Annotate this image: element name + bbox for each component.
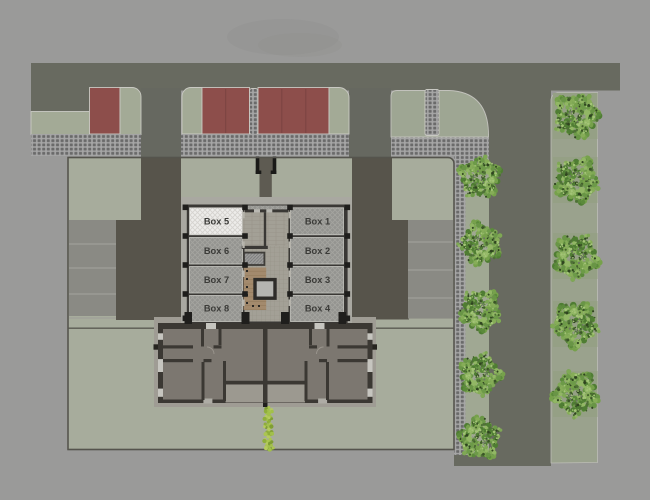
svg-text:Box 4: Box 4 — [305, 304, 331, 314]
svg-text:Box 7: Box 7 — [204, 275, 229, 285]
svg-text:Box 5: Box 5 — [204, 217, 229, 227]
svg-text:Box 8: Box 8 — [204, 304, 229, 314]
svg-text:Box 6: Box 6 — [204, 246, 229, 256]
svg-text:Box 1: Box 1 — [305, 217, 330, 227]
svg-text:Box 3: Box 3 — [305, 275, 330, 285]
svg-text:Box 2: Box 2 — [305, 246, 330, 256]
